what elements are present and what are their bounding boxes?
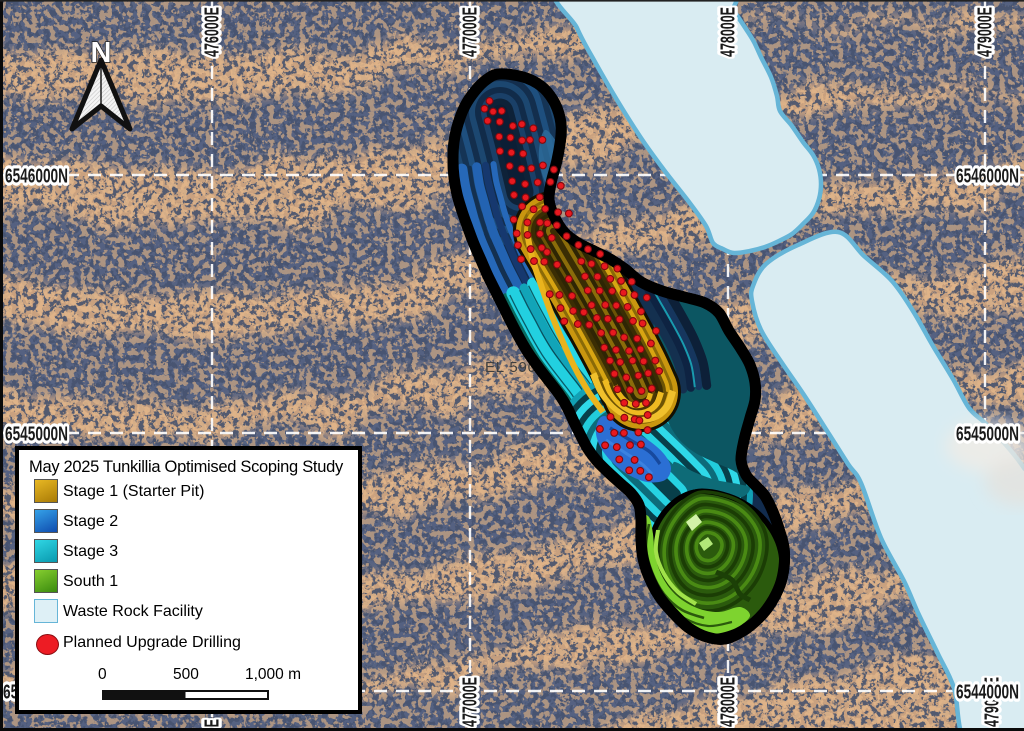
svg-text:6546000N: 6546000N [5,165,68,188]
svg-text:478000E: 478000E [717,7,740,57]
svg-text:6546000N: 6546000N [956,165,1019,188]
svg-text:476000E: 476000E [201,7,224,57]
svg-text:477000E: 477000E [459,7,482,57]
svg-text:6544000N: 6544000N [956,681,1019,704]
svg-text:479000E: 479000E [974,7,997,57]
svg-text:477000E: 477000E [459,677,482,727]
svg-text:478000E: 478000E [717,677,740,727]
svg-text:6545000N: 6545000N [956,423,1019,446]
svg-text:6545000N: 6545000N [5,423,68,446]
